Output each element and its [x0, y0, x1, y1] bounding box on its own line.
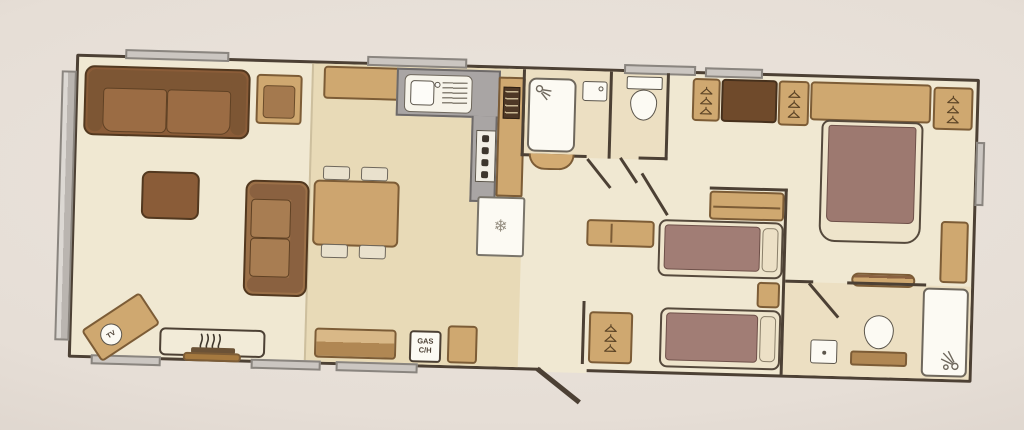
coffee-table	[141, 171, 200, 221]
wall-twin-left	[581, 301, 586, 369]
pillow	[761, 228, 778, 272]
wall-wc-bottom	[639, 156, 668, 160]
pillow	[759, 316, 776, 362]
hearth	[183, 352, 241, 363]
window-top-4	[705, 67, 763, 79]
twin-bed-1	[657, 219, 784, 279]
basin-drain	[822, 351, 826, 355]
tv-label: TV	[106, 329, 117, 340]
window-top-1	[125, 49, 229, 62]
shower-room-basin	[582, 81, 608, 102]
twin-vanity-unit	[586, 219, 655, 248]
dining-table	[312, 179, 400, 247]
floorplan-photo: TV GAS C/H	[0, 0, 1024, 430]
overhead-cupboards	[810, 81, 932, 123]
window-bottom-3	[336, 361, 418, 373]
twin-bedside-unit	[709, 190, 785, 221]
lounge-sofa	[83, 65, 251, 140]
hob-burner	[482, 135, 489, 142]
mattress	[663, 224, 760, 272]
sink-bowl	[410, 80, 435, 106]
hob-burner	[481, 159, 488, 166]
dining-chair	[361, 167, 388, 182]
shower-head-icon	[533, 83, 556, 106]
shower-cubicle	[527, 77, 577, 152]
bedside-cabinet	[939, 221, 969, 284]
twin-wardrobe-top	[692, 78, 721, 122]
hanger-icon	[945, 94, 962, 124]
caravan-floorplan: TV GAS C/H	[68, 54, 980, 383]
bedside-divider	[713, 206, 780, 209]
hob-burner	[481, 171, 488, 178]
double-mattress	[826, 125, 917, 224]
double-bed	[818, 120, 923, 245]
gas-label-line2: C/H	[419, 346, 432, 355]
sofa-cushion	[102, 87, 167, 133]
shower-head-icon	[937, 347, 964, 374]
shower-step	[528, 153, 574, 170]
corner-sofa	[243, 180, 310, 298]
wc-door	[620, 157, 639, 183]
hanger-icon	[602, 323, 619, 353]
sofa-arm-left	[87, 69, 104, 131]
ensuite-shower	[921, 287, 969, 377]
hob-burner	[482, 147, 489, 154]
window-bottom-2	[251, 359, 321, 371]
hanger-icon	[698, 85, 715, 115]
corner-sofa-cushion	[250, 199, 291, 239]
twin-bed-2	[659, 307, 782, 370]
sink-drainer	[442, 82, 468, 107]
sink-tap	[434, 82, 440, 88]
dining-chair	[321, 244, 348, 259]
hob	[475, 130, 496, 183]
sofa-cushion	[166, 89, 231, 135]
entrance-opening	[541, 363, 587, 373]
microwave-shelves	[505, 91, 519, 115]
window-right-wall	[974, 142, 985, 206]
gas-ch-locker: GAS C/H	[409, 330, 442, 363]
corner-sofa-cushion	[249, 238, 290, 278]
corner-sofa-back	[289, 185, 306, 293]
chest-of-drawers	[721, 79, 778, 124]
wc-cistern	[627, 76, 663, 90]
tv-screen: TV	[96, 319, 126, 349]
mattress	[665, 312, 758, 363]
hall-door	[641, 173, 669, 216]
main-wardrobe-left	[778, 80, 810, 126]
armchair-seat	[263, 85, 296, 119]
twin-wardrobe-bottom	[588, 311, 633, 364]
base-cabinet	[447, 325, 478, 364]
front-end-window	[54, 70, 77, 340]
between-beds-unit	[756, 282, 780, 309]
basin-tap	[598, 86, 603, 91]
snowflake-icon: ❄	[493, 216, 508, 236]
storage-bench	[314, 327, 397, 359]
main-wardrobe-right	[932, 87, 973, 131]
shower-room-door	[587, 158, 612, 189]
kitchen-sink	[404, 74, 473, 114]
sofa-arm-right	[230, 73, 247, 135]
dining-chair	[323, 166, 350, 181]
vanity-divider	[610, 224, 612, 243]
hanger-icon	[785, 88, 802, 118]
ensuite-basin	[810, 339, 838, 364]
fridge-freezer: ❄	[476, 196, 526, 257]
dining-chair	[359, 245, 386, 260]
sideboard	[323, 66, 402, 101]
ensuite-cistern	[850, 350, 907, 367]
tv-corner-unit: TV	[81, 292, 160, 362]
window-top-3	[624, 64, 696, 76]
lounge-armchair	[255, 74, 302, 125]
